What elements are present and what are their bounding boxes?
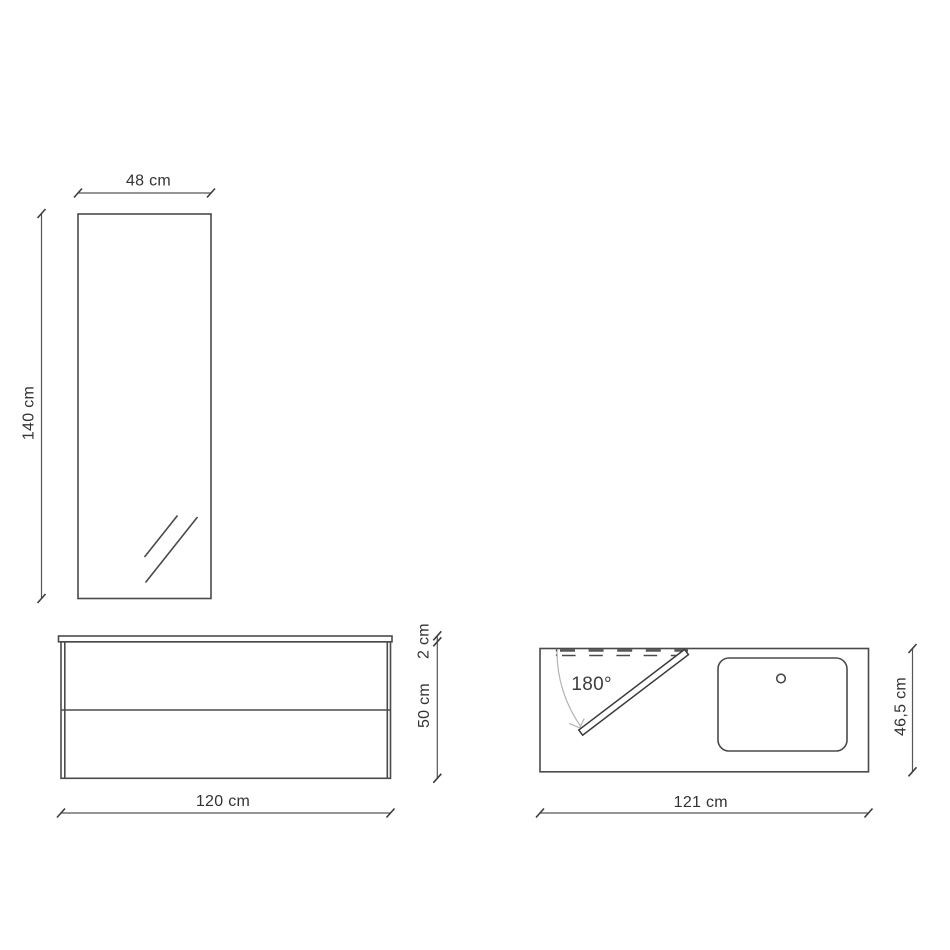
svg-text:48 cm: 48 cm <box>126 173 171 190</box>
svg-text:2 cm: 2 cm <box>416 623 433 659</box>
svg-text:120 cm: 120 cm <box>196 793 250 810</box>
svg-text:121 cm: 121 cm <box>674 794 728 811</box>
svg-text:180°: 180° <box>571 674 612 695</box>
svg-text:50 cm: 50 cm <box>416 683 433 728</box>
svg-text:140 cm: 140 cm <box>21 386 38 440</box>
svg-text:46,5 cm: 46,5 cm <box>893 677 910 736</box>
